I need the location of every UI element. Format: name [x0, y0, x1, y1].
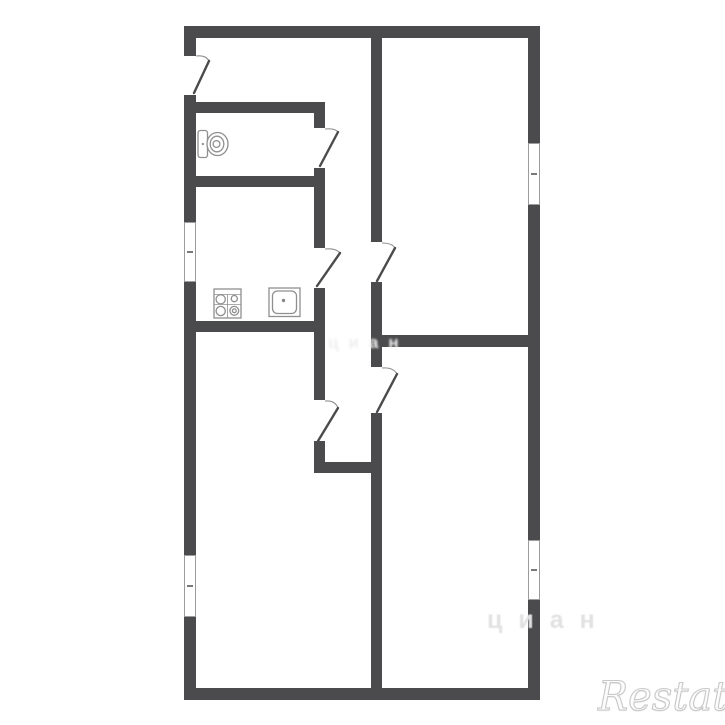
faint-watermark: циан	[328, 333, 409, 353]
door-leaf-icon	[377, 368, 397, 412]
door-leaf-icon	[194, 56, 209, 93]
stove-icon	[214, 289, 241, 318]
brand-watermark: Restate	[598, 674, 725, 720]
door-leaf-icon	[377, 243, 395, 281]
toilet-icon	[198, 131, 228, 158]
faint-watermark: циан	[487, 606, 611, 635]
sink-icon	[269, 288, 300, 317]
door-leaf-icon	[318, 401, 338, 441]
door-leaf-icon	[320, 129, 338, 166]
door-leaf-icon	[317, 249, 340, 286]
floor-plan: циан циан Restate	[0, 0, 725, 725]
plan-symbols-layer	[0, 0, 725, 725]
